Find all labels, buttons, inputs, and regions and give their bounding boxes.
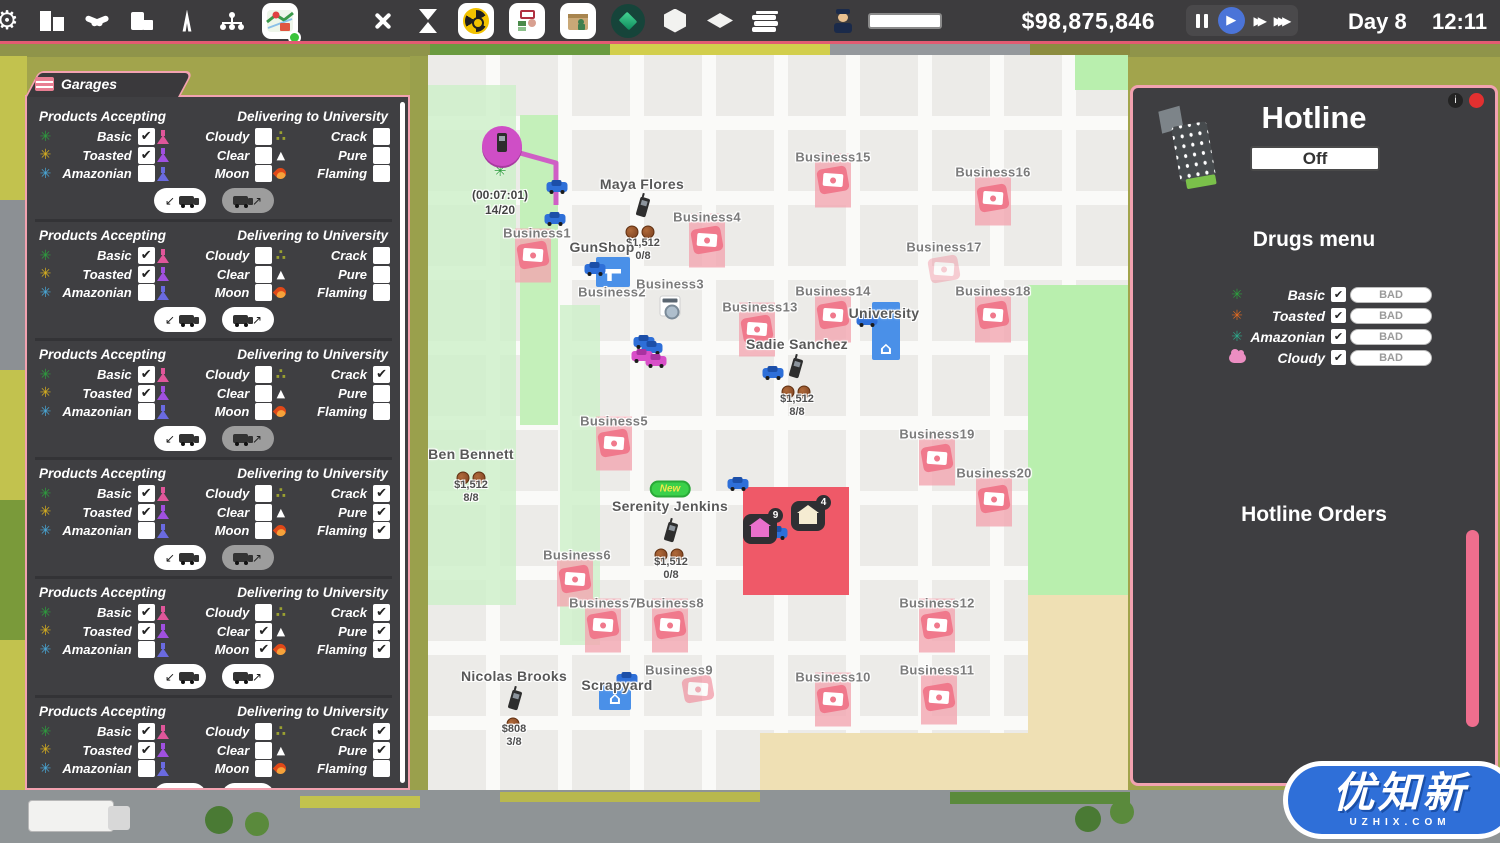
delivery-van <box>585 262 606 274</box>
drug-row: ✳Toasted✔BAD <box>1133 305 1495 326</box>
antenna-icon[interactable] <box>172 4 202 38</box>
checkbox-clear[interactable] <box>255 742 272 759</box>
product-label: Clear <box>176 505 250 520</box>
product-amazonian: ✳Amazonian <box>37 165 155 182</box>
truck-icon <box>179 196 194 205</box>
product-toasted: ✳Toasted✔ <box>37 504 155 521</box>
product-label: Cloudy <box>176 248 250 263</box>
hub-timer: (00:07:01)14/20 <box>472 188 528 218</box>
product-label: Basic <box>58 605 132 620</box>
drug-row: ✳Amazonian✔BAD <box>1133 326 1495 347</box>
drug-checkbox[interactable]: ✔ <box>1331 350 1346 365</box>
checkbox-moon[interactable] <box>255 165 272 182</box>
product-cloudy: Cloudy <box>155 128 273 145</box>
business-label: Business17 <box>906 240 981 255</box>
checkbox-amazonian[interactable] <box>138 165 155 182</box>
checkbox-crack[interactable]: ✔ <box>373 604 390 621</box>
products-accepting-header: Products Accepting <box>39 585 166 600</box>
checkbox-amazonian[interactable] <box>138 284 155 301</box>
truck-icon <box>233 672 248 681</box>
drug-row: ✳Basic✔BAD <box>1133 284 1495 305</box>
product-crack: ∴Crack✔ <box>272 723 390 740</box>
hotline-title: Hotline <box>1133 100 1495 136</box>
business-label: Business1 <box>503 226 571 241</box>
product-flaming: Flaming✔ <box>272 641 390 658</box>
truck-in-button[interactable]: ↙ <box>154 545 206 570</box>
checkbox-moon[interactable] <box>255 284 272 301</box>
cube-icon[interactable] <box>660 4 690 38</box>
checkbox-pure[interactable]: ✔ <box>373 742 390 759</box>
product-label: Flaming <box>293 404 367 419</box>
product-label: Basic <box>58 248 132 263</box>
business-label: Business6 <box>543 548 611 563</box>
quality-button[interactable]: BAD <box>1350 287 1432 303</box>
customer-phone-icon <box>508 689 523 710</box>
product-toasted: ✳Toasted✔ <box>37 385 155 402</box>
business-label: Business10 <box>795 670 870 685</box>
map-icon[interactable] <box>262 3 298 39</box>
garage-section: Products AcceptingDelivering to Universi… <box>35 341 392 460</box>
garages-panel: Products AcceptingDelivering to Universi… <box>25 95 410 790</box>
product-label: Crack <box>293 724 367 739</box>
checkbox-basic[interactable]: ✔ <box>138 247 155 264</box>
checkbox-clear[interactable] <box>255 147 272 164</box>
city-map[interactable]: ⌂⌂✳94$1,5120/8$1,5128/8$1,5128/8$1,5120/… <box>428 55 1128 790</box>
business-icon[interactable] <box>518 243 548 268</box>
product-crack: ∴Crack <box>272 247 390 264</box>
checkbox-basic[interactable]: ✔ <box>138 128 155 145</box>
product-label: Amazonian <box>58 404 132 419</box>
product-label: Crack <box>293 605 367 620</box>
product-label: Moon <box>176 404 250 419</box>
quality-button[interactable]: BAD <box>1350 329 1432 345</box>
hotline-orders-title: Hotline Orders <box>1133 503 1495 527</box>
gem-icon[interactable] <box>611 4 645 38</box>
process-icon[interactable] <box>509 3 545 39</box>
checkbox-toasted[interactable]: ✔ <box>138 742 155 759</box>
truck-icon <box>179 434 194 443</box>
truck-out-button[interactable]: ↗ <box>222 664 274 689</box>
business-label: Business7 <box>569 596 637 611</box>
product-moon: Moon✔ <box>155 641 273 658</box>
product-label: Pure <box>293 624 367 639</box>
drug-label: Basic <box>1249 287 1325 303</box>
business-label: Business13 <box>722 300 797 315</box>
product-amazonian: ✳Amazonian <box>37 284 155 301</box>
products-accepting-header: Products Accepting <box>39 228 166 243</box>
product-label: Flaming <box>293 761 367 776</box>
poi-label: Scrapyard <box>581 677 652 693</box>
product-basic: ✳Basic✔ <box>37 723 155 740</box>
truck-out-button[interactable]: ↗ <box>222 783 274 790</box>
product-cloudy: Cloudy <box>155 604 273 621</box>
products-accepting-header: Products Accepting <box>39 704 166 719</box>
checkbox-cloudy[interactable] <box>255 128 272 145</box>
business-label: Business19 <box>899 427 974 442</box>
checkbox-basic[interactable]: ✔ <box>138 485 155 502</box>
drug-row: Cloudy✔BAD <box>1133 347 1495 368</box>
garages-tab-label: Garages <box>61 76 117 92</box>
checkbox-moon[interactable] <box>255 760 272 777</box>
product-crack: ∴Crack✔ <box>272 604 390 621</box>
checkbox-basic[interactable]: ✔ <box>138 604 155 621</box>
customer-phone-icon <box>636 196 651 217</box>
watermark-text: 优知新 <box>1332 772 1467 814</box>
checkbox-flaming[interactable] <box>373 284 390 301</box>
product-label: Basic <box>58 486 132 501</box>
checkbox-pure[interactable]: ✔ <box>373 623 390 640</box>
delivering-to-header: Delivering to University <box>237 704 388 719</box>
money-display: $98,875,846 <box>1005 8 1155 35</box>
product-amazonian: ✳Amazonian <box>37 760 155 777</box>
product-amazonian: ✳Amazonian <box>37 403 155 420</box>
business-icon[interactable] <box>929 257 959 282</box>
business-icon[interactable] <box>922 613 952 638</box>
product-basic: ✳Basic✔ <box>37 604 155 621</box>
checkbox-flaming[interactable] <box>373 403 390 420</box>
truck-icon <box>179 553 194 562</box>
truck-icon <box>233 196 248 205</box>
radioactive-icon[interactable] <box>458 3 494 39</box>
drug-label: Toasted <box>1249 308 1325 324</box>
checkbox-flaming[interactable]: ✔ <box>373 522 390 539</box>
fastest-forward-button[interactable]: ▶▶▶ <box>1274 14 1290 28</box>
quality-button[interactable]: BAD <box>1350 350 1432 366</box>
checkbox-pure[interactable]: ✔ <box>373 504 390 521</box>
product-cloudy: Cloudy <box>155 247 273 264</box>
drug-checkbox[interactable]: ✔ <box>1331 329 1346 344</box>
fast-forward-button[interactable]: ▶▶ <box>1254 14 1265 28</box>
truck-out-button[interactable]: ↗ <box>222 307 274 332</box>
quality-button[interactable]: BAD <box>1350 308 1432 324</box>
product-moon: Moon <box>155 165 273 182</box>
customer-label: Nicolas Brooks <box>461 668 567 684</box>
truck-in-button[interactable]: ↙ <box>154 664 206 689</box>
truck-icon <box>233 553 248 562</box>
business-icon[interactable] <box>692 228 722 253</box>
network-icon[interactable] <box>217 4 247 38</box>
office-icon[interactable] <box>127 4 157 38</box>
product-label: Amazonian <box>58 523 132 538</box>
time-controls: ▶ ▶▶ ▶▶▶ <box>1186 5 1298 36</box>
business-icon[interactable] <box>560 567 590 592</box>
products-accepting-header: Products Accepting <box>39 347 166 362</box>
product-label: Cloudy <box>176 724 250 739</box>
business-label: Business4 <box>673 210 741 225</box>
product-moon: Moon <box>155 403 273 420</box>
police-heat-bar <box>868 13 942 29</box>
customer-price: $1,5128/8 <box>780 393 814 419</box>
truck-in-button[interactable]: ↙ <box>154 188 206 213</box>
product-label: Flaming <box>293 166 367 181</box>
garage-section: Products AcceptingDelivering to Universi… <box>35 579 392 698</box>
business-icon[interactable] <box>818 687 848 712</box>
utensils-icon[interactable] <box>368 4 398 38</box>
checkbox-crack[interactable] <box>373 247 390 264</box>
poi-label: GunShop <box>569 239 634 255</box>
product-cloudy: Cloudy <box>155 485 273 502</box>
truck-out-button[interactable]: ↗ <box>222 188 274 213</box>
checkbox-cloudy[interactable] <box>255 485 272 502</box>
product-label: Moon <box>176 642 250 657</box>
product-label: Pure <box>293 148 367 163</box>
product-label: Moon <box>176 761 250 776</box>
product-label: Clear <box>176 267 250 282</box>
product-cloudy: Cloudy <box>155 723 273 740</box>
hotline-scrollbar[interactable] <box>1466 530 1479 727</box>
product-label: Clear <box>176 624 250 639</box>
delivery-van <box>728 477 749 489</box>
product-label: Crack <box>293 486 367 501</box>
checkbox-cloudy[interactable] <box>255 604 272 621</box>
checkbox-crack[interactable]: ✔ <box>373 485 390 502</box>
business-label: Business3 <box>636 277 704 292</box>
product-flaming: Flaming <box>272 760 390 777</box>
product-flaming: Flaming✔ <box>272 522 390 539</box>
business-icon[interactable] <box>818 303 848 328</box>
checkbox-amazonian[interactable] <box>138 403 155 420</box>
products-accepting-header: Products Accepting <box>39 466 166 481</box>
product-label: Amazonian <box>58 166 132 181</box>
product-clear: Clear <box>155 504 273 521</box>
product-label: Cloudy <box>176 486 250 501</box>
city-buildings-icon[interactable] <box>37 4 67 38</box>
business-icon[interactable] <box>978 186 1008 211</box>
product-amazonian: ✳Amazonian <box>37 641 155 658</box>
top-toolbar: ⚙ $98,875,846 ▶ ▶▶ ▶▶▶ Day 8 12:11 <box>0 0 1500 41</box>
product-label: Flaming <box>293 642 367 657</box>
product-basic: ✳Basic✔ <box>37 128 155 145</box>
business-icon[interactable] <box>683 677 713 702</box>
truck-icon <box>179 315 194 324</box>
product-label: Crack <box>293 367 367 382</box>
time-display: 12:11 <box>1432 9 1500 35</box>
drug-label: Cloudy <box>1249 350 1325 366</box>
product-moon: Moon <box>155 284 273 301</box>
product-crack: ∴Crack✔ <box>272 485 390 502</box>
product-toasted: ✳Toasted✔ <box>37 742 155 759</box>
laundromat-icon <box>660 296 681 317</box>
garages-scrollbar[interactable] <box>400 102 405 783</box>
checkbox-toasted[interactable]: ✔ <box>138 266 155 283</box>
business-icon[interactable] <box>924 685 954 710</box>
business-icon[interactable] <box>818 168 848 193</box>
handshake-icon[interactable] <box>82 4 112 38</box>
checkbox-toasted[interactable]: ✔ <box>138 147 155 164</box>
product-basic: ✳Basic✔ <box>37 366 155 383</box>
checkbox-crack[interactable]: ✔ <box>373 723 390 740</box>
pause-button[interactable] <box>1195 13 1209 29</box>
business-label: Business11 <box>900 663 975 678</box>
checkbox-moon[interactable] <box>255 522 272 539</box>
product-crack: ∴Crack✔ <box>272 366 390 383</box>
product-label: Toasted <box>58 267 132 282</box>
checkbox-flaming[interactable] <box>373 760 390 777</box>
product-flaming: Flaming <box>272 284 390 301</box>
business-label: Business15 <box>795 150 870 165</box>
checkbox-crack[interactable] <box>373 128 390 145</box>
safehouse-icon[interactable]: 9 <box>743 514 777 544</box>
delivering-to-header: Delivering to University <box>237 228 388 243</box>
checkbox-pure[interactable] <box>373 147 390 164</box>
product-clear: Clear✔ <box>155 623 273 640</box>
product-pure: ▲Pure✔ <box>272 742 390 759</box>
product-label: Crack <box>293 129 367 144</box>
customer-label: Ben Bennett <box>428 446 514 462</box>
product-label: Moon <box>176 523 250 538</box>
product-flaming: Flaming <box>272 165 390 182</box>
business-icon[interactable] <box>655 613 685 638</box>
drug-label: Amazonian <box>1249 329 1325 345</box>
product-moon: Moon <box>155 760 273 777</box>
checkbox-amazonian[interactable] <box>138 760 155 777</box>
gear-icon[interactable]: ⚙ <box>0 4 22 38</box>
product-pure: ▲Pure <box>272 147 390 164</box>
checkbox-clear[interactable] <box>255 504 272 521</box>
checkbox-clear[interactable]: ✔ <box>255 623 272 640</box>
products-accepting-header: Products Accepting <box>39 109 166 124</box>
business-label: Business20 <box>956 466 1031 481</box>
product-toasted: ✳Toasted✔ <box>37 147 155 164</box>
customer-label: Sadie Sanchez <box>746 336 848 352</box>
customer-phone-icon <box>789 357 804 378</box>
checkbox-cloudy[interactable] <box>255 366 272 383</box>
customer-price: $1,5120/8 <box>654 556 688 582</box>
garages-tab[interactable]: Garages <box>25 71 180 97</box>
checkbox-flaming[interactable]: ✔ <box>373 641 390 658</box>
delivering-to-header: Delivering to University <box>237 109 388 124</box>
police-officer-icon[interactable] <box>828 4 858 38</box>
product-clear: Clear <box>155 147 273 164</box>
product-cloudy: Cloudy <box>155 366 273 383</box>
business-label: Business5 <box>580 414 648 429</box>
play-button[interactable]: ▶ <box>1218 7 1245 34</box>
business-icon[interactable] <box>978 303 1008 328</box>
business-icon[interactable] <box>599 431 629 456</box>
checkbox-cloudy[interactable] <box>255 723 272 740</box>
garage-section: Products AcceptingDelivering to Universi… <box>35 103 392 222</box>
checkbox-crack[interactable]: ✔ <box>373 366 390 383</box>
checkbox-basic[interactable]: ✔ <box>138 723 155 740</box>
checkbox-moon[interactable] <box>255 403 272 420</box>
product-label: Flaming <box>293 285 367 300</box>
business-label: Business16 <box>955 165 1030 180</box>
product-label: Cloudy <box>176 605 250 620</box>
safehouse-icon[interactable]: 4 <box>791 501 825 531</box>
product-amazonian: ✳Amazonian <box>37 522 155 539</box>
checkbox-pure[interactable] <box>373 266 390 283</box>
delivering-to-header: Delivering to University <box>237 585 388 600</box>
customer-price: $1,5128/8 <box>454 479 488 505</box>
product-pure: ▲Pure✔ <box>272 623 390 640</box>
product-label: Amazonian <box>58 285 132 300</box>
hourglass-icon[interactable] <box>413 4 443 38</box>
checkbox-amazonian[interactable] <box>138 522 155 539</box>
product-pure: ▲Pure✔ <box>272 504 390 521</box>
garage-icon <box>35 77 54 91</box>
product-label: Pure <box>293 743 367 758</box>
watermark: 优知新 UZHIX.COM <box>1283 761 1500 839</box>
product-label: Toasted <box>58 386 132 401</box>
truck-in-button[interactable]: ↙ <box>154 783 206 790</box>
product-label: Clear <box>176 743 250 758</box>
customer-price: $8083/8 <box>502 723 526 749</box>
poi-label: University <box>849 305 920 321</box>
business-icon[interactable] <box>979 487 1009 512</box>
garage-section: Products AcceptingDelivering to Universi… <box>35 222 392 341</box>
product-label: Pure <box>293 267 367 282</box>
hotline-toggle-button[interactable]: Off <box>1250 146 1380 171</box>
product-label: Toasted <box>58 624 132 639</box>
checkbox-toasted[interactable]: ✔ <box>138 504 155 521</box>
product-label: Toasted <box>58 743 132 758</box>
checkbox-cloudy[interactable] <box>255 247 272 264</box>
hotline-panel: i Hotline Off Drugs menu ✳Basic✔BAD✳Toas… <box>1130 85 1498 786</box>
hotline-van <box>646 354 667 366</box>
product-label: Cloudy <box>176 129 250 144</box>
drugs-menu-list: ✳Basic✔BAD✳Toasted✔BAD✳Amazonian✔BADClou… <box>1133 284 1495 368</box>
product-label: Cloudy <box>176 367 250 382</box>
product-label: Toasted <box>58 148 132 163</box>
checkbox-flaming[interactable] <box>373 165 390 182</box>
drug-checkbox[interactable]: ✔ <box>1331 308 1346 323</box>
tile-icon[interactable] <box>705 4 735 38</box>
truck-icon <box>179 672 194 681</box>
delivery-van <box>547 180 568 192</box>
truck-in-button[interactable]: ↙ <box>154 307 206 332</box>
garage-section: Products AcceptingDelivering to Universi… <box>35 460 392 579</box>
product-label: Flaming <box>293 523 367 538</box>
delivery-van <box>545 212 566 224</box>
delivery-van <box>763 366 784 378</box>
customer-label: Maya Flores <box>600 176 684 192</box>
checkbox-amazonian[interactable] <box>138 641 155 658</box>
checkbox-moon[interactable]: ✔ <box>255 641 272 658</box>
business-label: Business18 <box>955 284 1030 299</box>
product-label: Pure <box>293 386 367 401</box>
new-badge: New <box>650 481 691 498</box>
product-basic: ✳Basic✔ <box>37 485 155 502</box>
drug-checkbox[interactable]: ✔ <box>1331 287 1346 302</box>
truck-out-button[interactable]: ↗ <box>222 426 274 451</box>
checkbox-basic[interactable]: ✔ <box>138 366 155 383</box>
customer-label: Serenity Jenkins <box>612 498 728 514</box>
checkbox-toasted[interactable]: ✔ <box>138 623 155 640</box>
checkbox-clear[interactable] <box>255 266 272 283</box>
product-label: Moon <box>176 285 250 300</box>
hotline-hub-icon[interactable] <box>482 126 522 166</box>
truck-out-button[interactable]: ↗ <box>222 545 274 570</box>
books-icon[interactable] <box>750 4 780 38</box>
product-clear: Clear <box>155 266 273 283</box>
business-icon[interactable] <box>588 613 618 638</box>
product-pure: ▲Pure <box>272 266 390 283</box>
product-label: Basic <box>58 367 132 382</box>
checkbox-pure[interactable] <box>373 385 390 402</box>
watermark-subtext: UZHIX.COM <box>1349 817 1450 828</box>
business-icon[interactable] <box>922 446 952 471</box>
product-toasted: ✳Toasted✔ <box>37 623 155 640</box>
checkbox-toasted[interactable]: ✔ <box>138 385 155 402</box>
truck-icon <box>233 434 248 443</box>
product-toasted: ✳Toasted✔ <box>37 266 155 283</box>
garage-section: Products AcceptingDelivering to Universi… <box>35 698 392 790</box>
checkbox-clear[interactable] <box>255 385 272 402</box>
package-icon[interactable] <box>560 3 596 39</box>
business-label: Business8 <box>636 596 704 611</box>
product-moon: Moon <box>155 522 273 539</box>
truck-in-button[interactable]: ↙ <box>154 426 206 451</box>
